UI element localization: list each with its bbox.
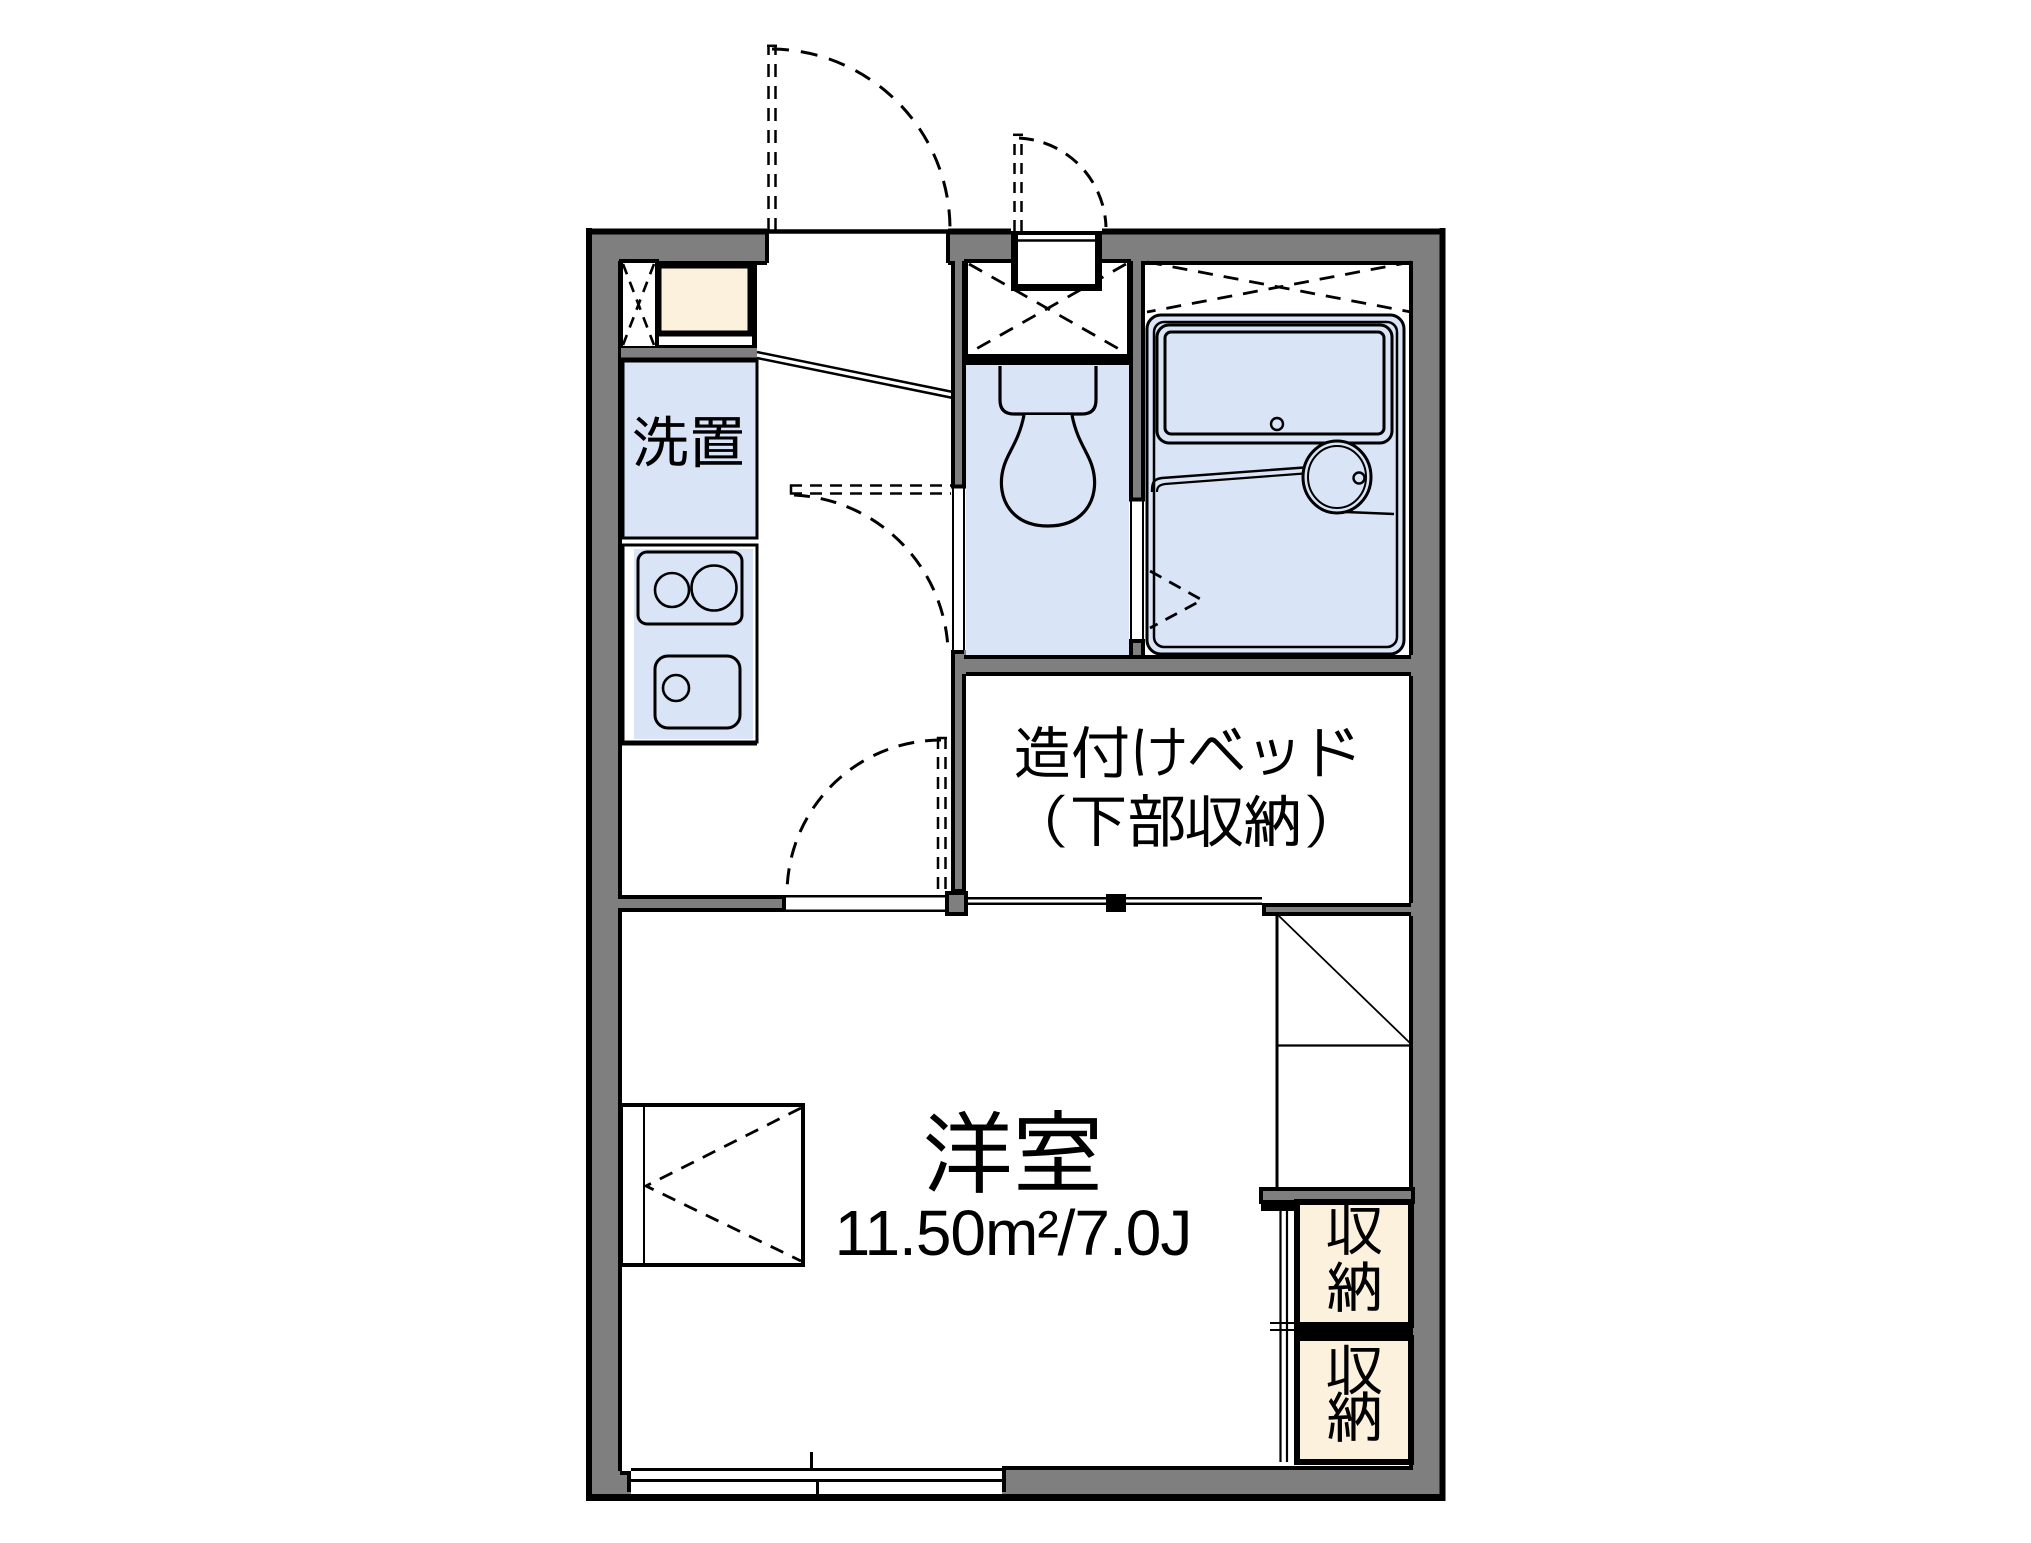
svg-text:11.50m²/7.0J: 11.50m²/7.0J bbox=[835, 1197, 1192, 1269]
